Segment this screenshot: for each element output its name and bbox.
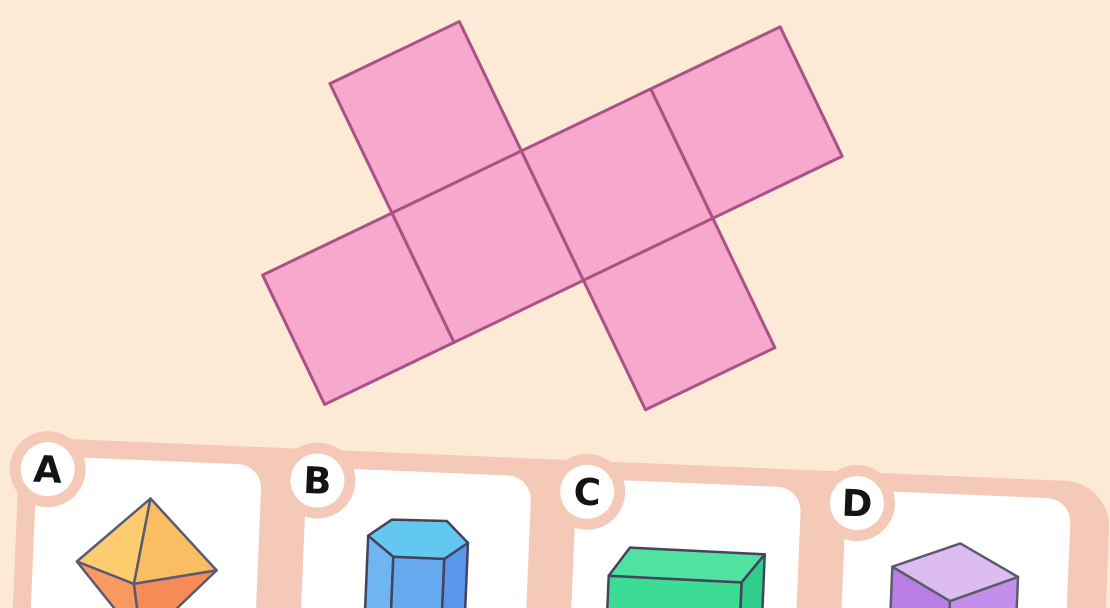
cuboid-face-top — [609, 547, 765, 583]
option-letter: A — [33, 450, 63, 488]
option-letter: B — [303, 461, 333, 499]
app-canvas: A B C D — [0, 0, 1110, 608]
option-letter: D — [841, 484, 873, 522]
prism-face-front — [389, 557, 444, 608]
option-letter: C — [573, 473, 602, 511]
